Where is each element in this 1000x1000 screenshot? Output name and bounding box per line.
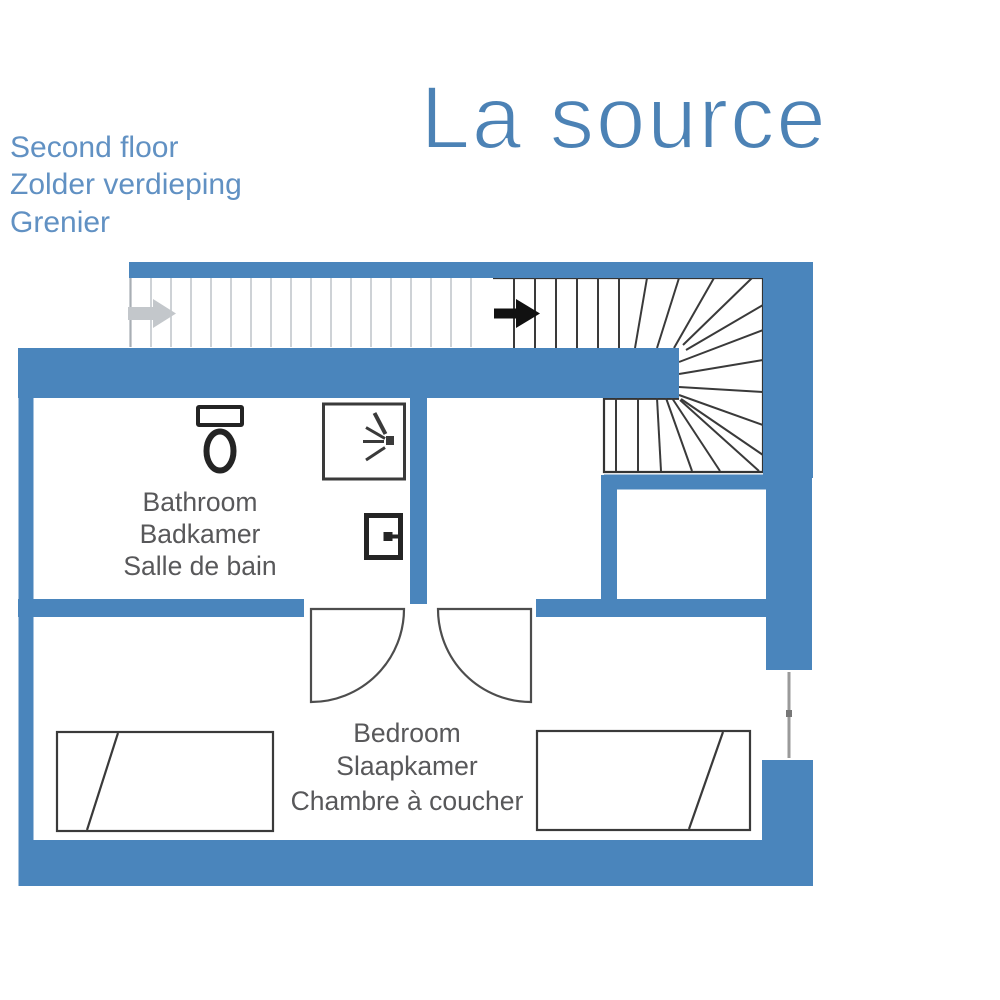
svg-text:Chambre à coucher: Chambre à coucher xyxy=(291,786,524,816)
svg-text:Badkamer: Badkamer xyxy=(140,519,261,549)
svg-text:Salle de bain: Salle de bain xyxy=(123,551,276,581)
svg-text:Bathroom: Bathroom xyxy=(143,487,258,517)
svg-text:Bedroom: Bedroom xyxy=(353,718,461,748)
svg-text:Second floor: Second floor xyxy=(10,131,178,164)
svg-text:La source: La source xyxy=(421,67,828,167)
svg-text:Grenier: Grenier xyxy=(10,206,110,239)
svg-text:Slaapkamer: Slaapkamer xyxy=(336,751,478,781)
svg-text:Zolder verdieping: Zolder verdieping xyxy=(10,168,242,201)
